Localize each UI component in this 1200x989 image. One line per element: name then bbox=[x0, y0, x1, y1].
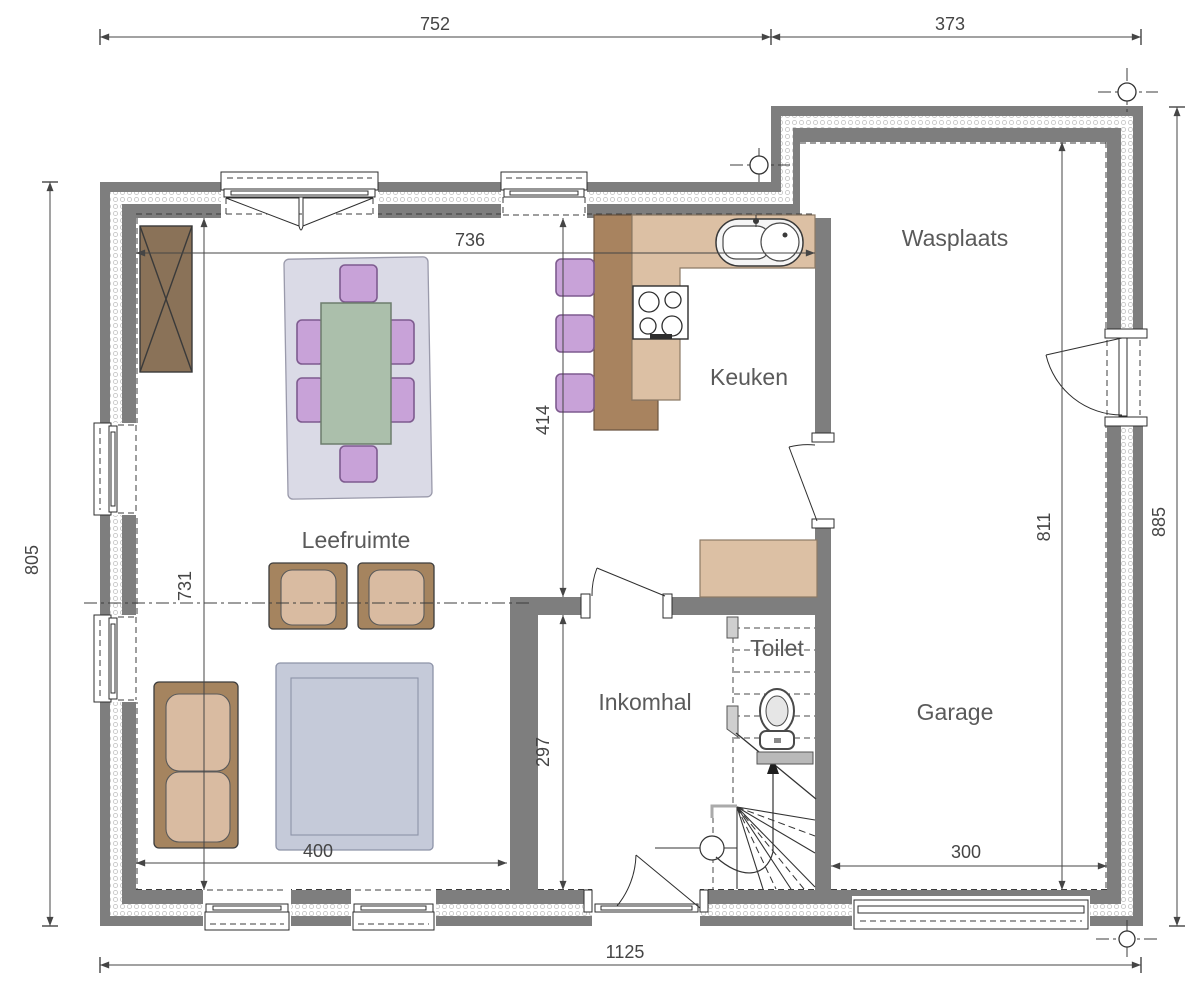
sink-icon bbox=[716, 215, 803, 266]
kitchen-window-icon bbox=[501, 172, 587, 218]
dim-kitchen-depth: 414 bbox=[533, 405, 553, 435]
dim-top-left: 752 bbox=[420, 14, 450, 34]
stair-newel-circle bbox=[700, 836, 724, 860]
toilet-partition-stub-top bbox=[727, 617, 738, 638]
garage-door-icon bbox=[852, 896, 1090, 931]
toilet-icon bbox=[760, 689, 794, 749]
dim-left-total: 805 bbox=[22, 545, 42, 575]
floor-plan-page: 752 373 1125 805 885 811 736 414 297 731… bbox=[0, 0, 1200, 984]
dim-right-total: 885 bbox=[1149, 507, 1169, 537]
hall-top-wall-left bbox=[510, 597, 582, 615]
dim-hall-height: 297 bbox=[533, 737, 553, 767]
room-label-garage: Garage bbox=[917, 699, 994, 725]
room-label-keuken: Keuken bbox=[710, 364, 788, 390]
living-rug bbox=[276, 663, 433, 850]
bar-stools bbox=[556, 259, 594, 412]
armchair-right bbox=[358, 563, 434, 629]
sofa bbox=[154, 682, 238, 848]
left-window-upper-icon bbox=[94, 423, 138, 515]
wardrobe-cabinet bbox=[140, 226, 192, 372]
dim-garage-interior-height: 811 bbox=[1034, 513, 1054, 542]
room-label-leefruimte: Leefruimte bbox=[302, 527, 411, 553]
dim-interior-width-top: 736 bbox=[455, 230, 485, 250]
kitchen-sideboard bbox=[700, 540, 817, 597]
room-label-toilet: Toilet bbox=[750, 635, 804, 661]
bottom-window-right-icon bbox=[351, 888, 436, 931]
dim-garage-width: 300 bbox=[951, 842, 981, 862]
floor-plan-drawing: 752 373 1125 805 885 811 736 414 297 731… bbox=[0, 0, 1200, 984]
room-label-inkomhal: Inkomhal bbox=[598, 689, 691, 715]
dim-bottom-total: 1125 bbox=[606, 942, 645, 962]
hall-top-wall-right bbox=[671, 597, 817, 615]
toilet-shelf bbox=[757, 752, 813, 764]
left-window-lower-icon bbox=[94, 615, 138, 702]
dining-table bbox=[321, 303, 391, 444]
room-area-right bbox=[800, 142, 1107, 890]
dim-living-width: 400 bbox=[303, 841, 333, 861]
stove-icon bbox=[633, 286, 688, 339]
dim-top-right: 373 bbox=[935, 14, 965, 34]
dim-living-height: 731 bbox=[175, 571, 195, 601]
armchair-left bbox=[269, 563, 347, 629]
room-label-wasplaats: Wasplaats bbox=[902, 225, 1009, 251]
bottom-window-left-icon bbox=[203, 888, 291, 931]
